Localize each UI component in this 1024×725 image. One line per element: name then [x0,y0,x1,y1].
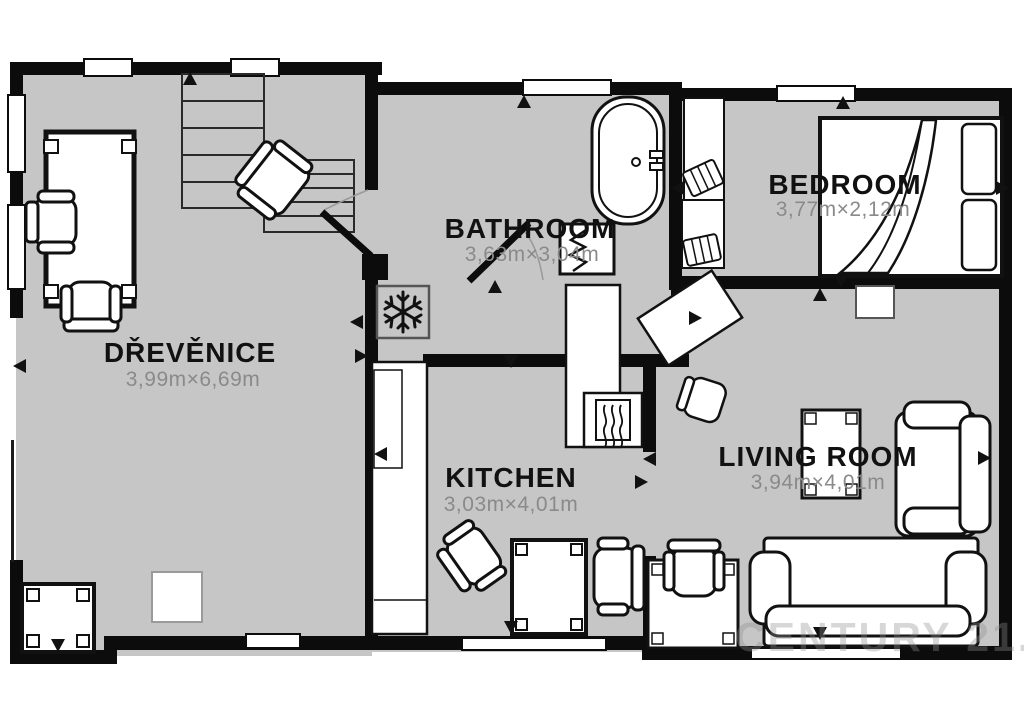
floor-plan-svg: DŘEVĚNICE 3,99m×6,69m BATHROOM 3,63m×3,0… [0,0,1024,725]
pillow [962,124,996,194]
room-dims-bathroom: 3,63m×3,04m [465,243,600,266]
shelf-unit-top [682,98,724,200]
room-dims-living-room: 3,94m×4,01m [751,471,886,494]
floor-hatch [152,572,202,622]
room-dims-bedroom: 3,77m×2,12m [776,198,911,221]
door-kitchen-bottom [462,638,606,650]
kitchen-counter [372,362,427,634]
room-label-bathroom: BATHROOM [445,213,616,244]
window-bathroom [523,80,611,95]
window-left-2 [8,205,25,289]
room-label-kitchen: KITCHEN [445,462,576,493]
tv-cabinet [856,286,894,318]
water-heater [584,393,642,447]
freezer [377,286,429,338]
desk-chair-bottom [61,282,121,331]
room-dims-drevenice: 3,99m×6,69m [126,368,261,391]
bathtub [592,97,664,224]
watermark: CENTURY 21. [735,614,1024,660]
room-label-bedroom: BEDROOM [768,169,921,200]
shelf-unit-bottom [682,200,724,268]
window-top-left-1 [84,59,132,76]
window-left-1 [8,95,25,172]
kitchen-chair-right [594,538,644,615]
tub-faucet [650,151,663,158]
side-table-chair [664,540,724,596]
tub-drain [632,158,640,166]
pillow [962,200,996,270]
room-label-drevenice: DŘEVĚNICE [104,337,276,368]
room-dims-kitchen: 3,03m×4,01m [444,493,579,516]
window-bottom-left [246,634,300,648]
floor-plan: DŘEVĚNICE 3,99m×6,69m BATHROOM 3,63m×3,0… [0,0,1024,725]
kitchen-table [512,540,586,634]
room-label-living-room: LIVING ROOM [718,441,917,472]
